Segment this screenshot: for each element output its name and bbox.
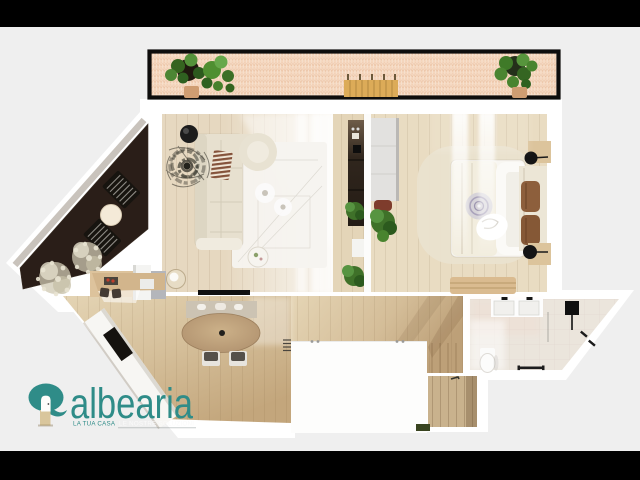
svg-text:LA TUA CASA: LA TUA CASA xyxy=(73,421,116,428)
svg-text:LE NOSTRE SOLUZIONI: LE NOSTRE SOLUZIONI xyxy=(119,421,195,428)
